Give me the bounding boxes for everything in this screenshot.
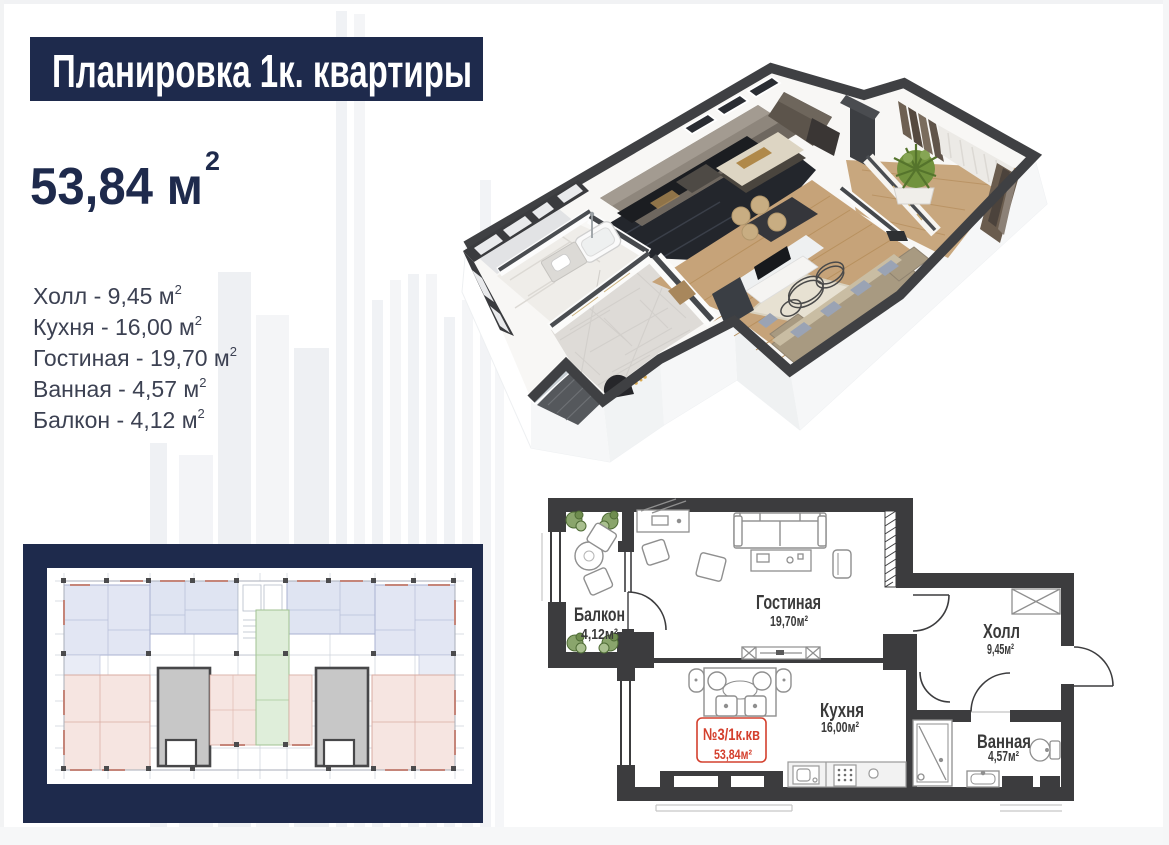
svg-text:Кухня - 16,00 м2: Кухня - 16,00 м2 — [33, 313, 202, 340]
svg-text:16,00м²: 16,00м² — [821, 719, 859, 736]
svg-text:53,84 м: 53,84 м — [30, 158, 203, 216]
svg-text:Балкон: Балкон — [574, 605, 625, 626]
svg-text:9,45м²: 9,45м² — [987, 641, 1014, 658]
svg-text:Холл: Холл — [983, 621, 1020, 643]
svg-text:Ванная - 4,57 м2: Ванная - 4,57 м2 — [33, 375, 206, 402]
svg-text:№3/1к.кв: №3/1к.кв — [703, 725, 760, 744]
svg-text:Гостиная: Гостиная — [756, 592, 821, 614]
svg-text:Планировка 1к. квартиры: Планировка 1к. квартиры — [52, 45, 472, 97]
svg-text:53,84м²: 53,84м² — [714, 746, 752, 762]
svg-text:Гостиная - 19,70 м2: Гостиная - 19,70 м2 — [33, 344, 237, 371]
svg-text:19,70м²: 19,70м² — [770, 613, 808, 630]
svg-text:4,57м²: 4,57м² — [988, 749, 1019, 765]
svg-text:4,12м²: 4,12м² — [581, 626, 618, 643]
svg-text:Балкон - 4,12 м2: Балкон - 4,12 м2 — [33, 406, 205, 433]
svg-text:Холл - 9,45 м2: Холл - 9,45 м2 — [33, 282, 182, 309]
svg-text:2: 2 — [205, 146, 220, 176]
